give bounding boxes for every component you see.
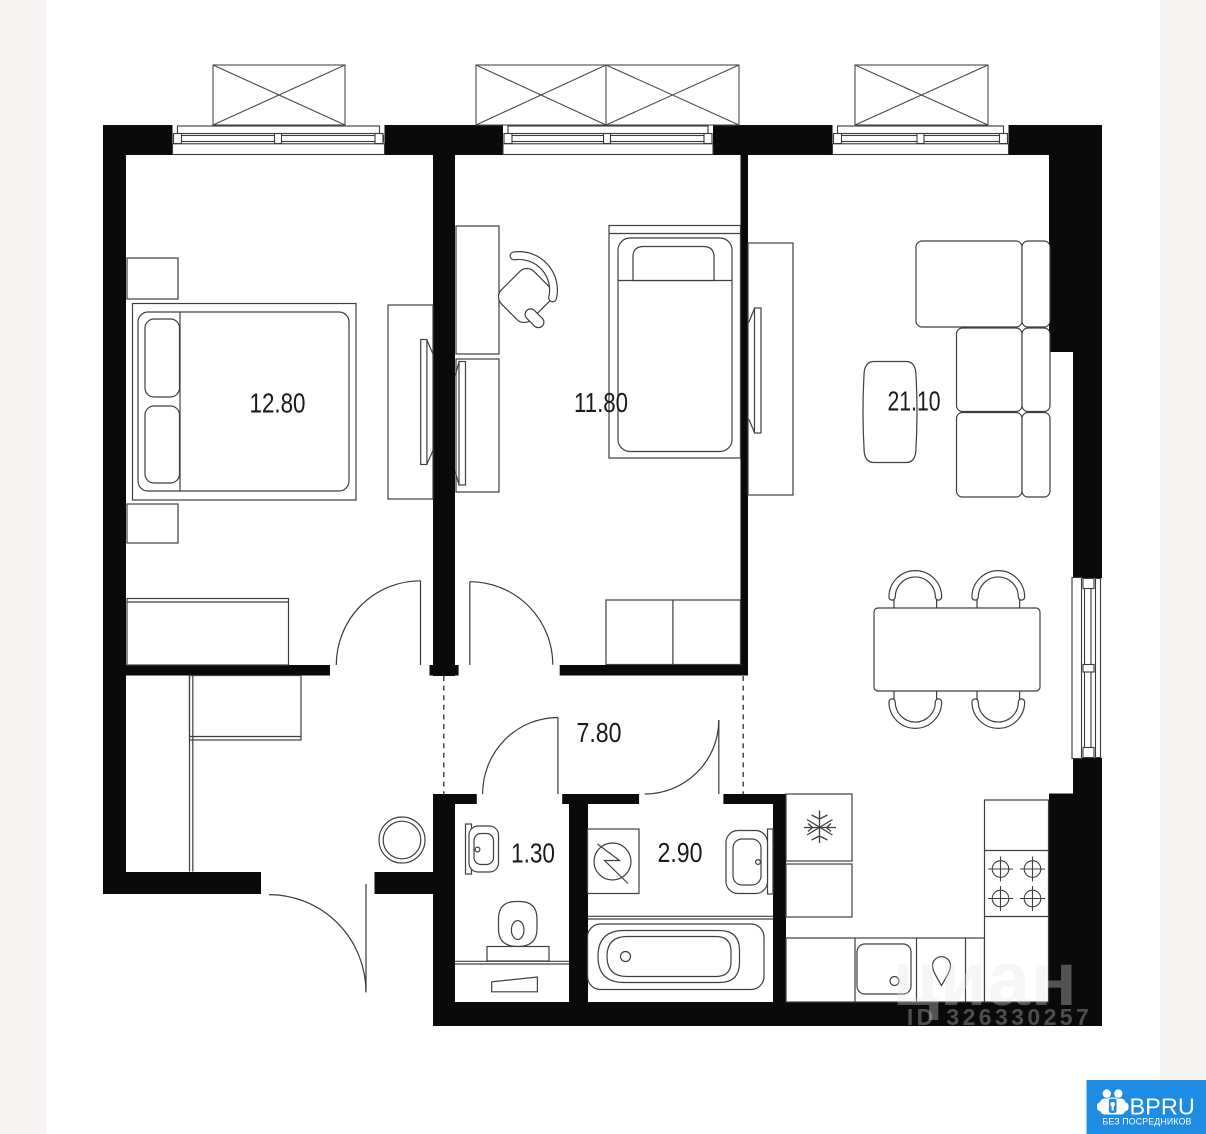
svg-text:ID 326330257: ID 326330257 bbox=[907, 1004, 1092, 1030]
svg-text:1.30: 1.30 bbox=[511, 838, 555, 869]
svg-text:BPRU: BPRU bbox=[1130, 1094, 1195, 1120]
svg-text:БЕЗ ПОСРЕДНИКОВ: БЕЗ ПОСРЕДНИКОВ bbox=[1103, 1117, 1192, 1127]
svg-text:2.90: 2.90 bbox=[658, 837, 703, 868]
svg-text:7.80: 7.80 bbox=[577, 717, 622, 748]
svg-text:11.80: 11.80 bbox=[574, 387, 628, 418]
svg-text:12.80: 12.80 bbox=[250, 388, 306, 419]
svg-text:21.10: 21.10 bbox=[888, 386, 941, 417]
